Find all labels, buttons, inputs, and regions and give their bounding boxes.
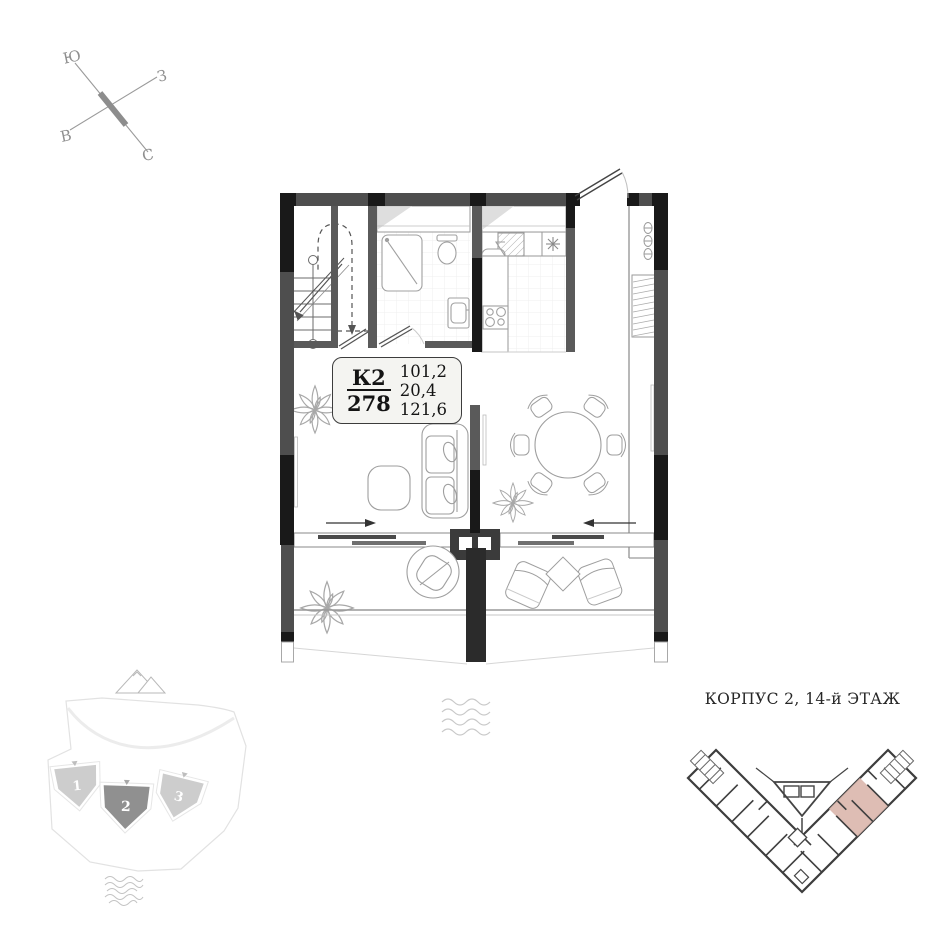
balcony-side-table (546, 557, 580, 591)
apartment-areas: 101,2 20,4 121,6 (400, 362, 447, 420)
right-window-glass (651, 385, 654, 451)
area-terrace: 20,4 (400, 381, 447, 400)
louver-grille (632, 275, 655, 337)
bathroom-sink (448, 298, 469, 328)
left-window-glass (295, 437, 298, 507)
slider-panel (318, 535, 396, 539)
coffee-table (368, 466, 410, 510)
area-main: 101,2 (400, 362, 447, 381)
plant-balcony (301, 582, 354, 633)
building-2-label: 2 (121, 799, 131, 815)
apartment-id: К2 278 (347, 367, 391, 415)
balcony-center-column (466, 548, 486, 662)
main-floor-plan (260, 160, 690, 675)
mountains-icon (116, 670, 165, 693)
ceiling-light-symbol (546, 237, 560, 251)
apartment-card: К2 278 101,2 20,4 121,6 (332, 357, 462, 424)
utility-riser-symbols (644, 223, 652, 260)
sliding-door-arrows (326, 519, 636, 527)
building-1-label: 1 (72, 779, 83, 795)
plant-dining (493, 483, 533, 522)
toilet (437, 235, 457, 264)
apartment-number: 278 (347, 393, 391, 414)
compass-label-south: Ю (61, 46, 82, 67)
water-symbol (440, 696, 502, 740)
balcony-armchair-right (576, 557, 624, 607)
building-code: К2 (347, 367, 391, 388)
walk-path-arrowhead (348, 325, 356, 335)
slider-panel (552, 535, 604, 539)
hanging-chair (407, 546, 459, 598)
dining-set (511, 391, 626, 498)
stove (483, 306, 508, 329)
balcony-armchair-left (503, 559, 552, 610)
sea-waves (105, 877, 143, 906)
stair-corridor-wall (331, 206, 338, 348)
staircase (292, 256, 349, 349)
bathroom-kitchen-wall (472, 206, 482, 258)
compass-label-west: З (156, 66, 169, 86)
sofa (422, 424, 468, 518)
utility-strip (629, 206, 656, 558)
roof-slope-line (294, 648, 467, 664)
area-total: 121,6 (400, 400, 447, 419)
stair-hall-door (339, 329, 368, 349)
living-dining-stub (470, 405, 480, 470)
compass-rose: Ю З В С (38, 32, 188, 177)
slider-panel (352, 541, 426, 545)
floor-minimap (660, 712, 945, 917)
entrance-door (575, 169, 628, 200)
stub-window-glass (483, 415, 486, 465)
site-plan: 1 2 3 (38, 648, 273, 918)
roof-slope-line (486, 648, 654, 664)
dining-table (535, 412, 601, 478)
minimap-title: КОРПУС 2, 14-й ЭТАЖ (660, 690, 945, 708)
kitchen-counter-side (482, 256, 508, 352)
slider-panel (518, 541, 574, 545)
bathroom-left-wall (368, 206, 377, 348)
compass-label-north: С (141, 145, 156, 165)
